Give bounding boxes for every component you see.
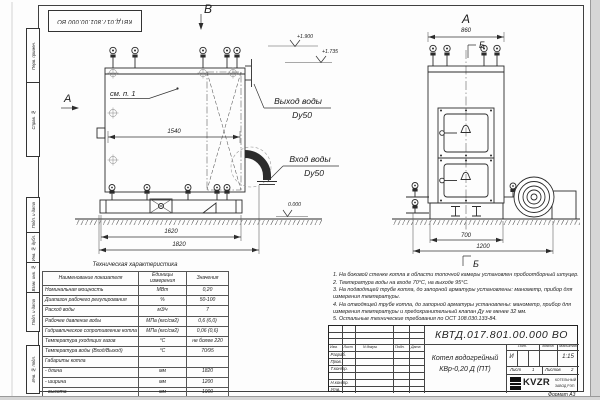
tb-mass-header: Масса: [542, 345, 553, 349]
tb-product-name-1: Котел водогрейный: [432, 355, 499, 362]
tb-doc-number: КВТД.017.801.00.000 ВО: [435, 330, 568, 341]
boiler-front-view: [75, 47, 322, 219]
note-line: 1. На боковой стенке котла в области топ…: [333, 272, 585, 279]
tb-col-list: Лист: [344, 346, 353, 350]
spec-row: Гидравлическое сопротивление котлаМПа (к…: [43, 326, 229, 336]
tb-sheets-label: Листов: [545, 368, 561, 372]
label-water-inlet-dn: Dy50: [304, 169, 324, 178]
spec-row: Номинальная мощностьМВт0,20: [43, 286, 229, 296]
spec-header-row: Наименование показателя Единицы измерени…: [43, 272, 229, 286]
safety-valve-icon: [110, 47, 240, 68]
tb-lit-header: Лит.: [518, 345, 527, 349]
tb-sheet-value: 1: [532, 368, 534, 372]
drawing-sheet: КВТД.017.801.00.000 ВО Перв. примен. Спр…: [0, 0, 600, 400]
label-water-outlet-dn: Dy50: [292, 111, 312, 120]
kvzr-logo-icon: [510, 377, 521, 390]
spec-header: Значения: [187, 272, 229, 286]
note-line: 3. На подводящей трубе котла, до запорно…: [333, 287, 585, 301]
tb-sheets-value: 2: [571, 368, 573, 372]
door-lock-icon: [461, 172, 470, 179]
tb-sheet-label: Лист: [510, 368, 521, 372]
view-label-front: В: [204, 3, 212, 15]
tb-lit-value: И: [509, 354, 513, 360]
dim-label-1820: 1820: [172, 242, 185, 248]
ground-hatch: [75, 220, 322, 225]
spec-header: Единицы измерения: [139, 272, 187, 286]
view-arrow-label-a: А: [64, 94, 71, 105]
dimension-lines-front: [99, 131, 259, 254]
technical-notes: 1. На боковой стенке котла в области топ…: [333, 272, 585, 324]
spec-row: Диапазон рабочего регулирования%50-100: [43, 296, 229, 306]
foundation: [430, 203, 503, 219]
note-line: 2. Температура воды на входе 70°С, на вы…: [333, 280, 585, 287]
tb-row-razrab: Разраб.: [331, 353, 347, 357]
tb-col-podp: Подп.: [395, 346, 405, 350]
note-line: 5. Остальные технические требования по О…: [333, 316, 585, 323]
tb-scale-value: 1:15: [562, 354, 574, 360]
tb-row-nkontr: Н.контр.: [331, 381, 349, 385]
base-frame: [100, 199, 242, 213]
spec-table-title: Техническая характеристика: [42, 262, 228, 268]
elevation-label-0000: 0.000: [288, 203, 301, 208]
doc-number-stamp-text: КВТД.017.801.00.000 ВО: [57, 18, 132, 24]
tb-col-izm: Изм.: [330, 346, 338, 350]
spec-row: - длинамм1820: [43, 367, 229, 377]
tb-scale-header: Масштаб: [559, 345, 577, 349]
spec-row: Габариты котла: [43, 357, 229, 367]
tb-product-name-2: КВр-0,20 Д (ПТ): [439, 366, 490, 373]
boiler-side-view: [392, 45, 580, 266]
tb-company-2: ЗАВОД РЭП: [555, 385, 574, 388]
burner: [203, 203, 216, 213]
spec-row: Температура уходящих газов°Сне более 220: [43, 336, 229, 346]
side-label-inv-dubl: Инв. № дубл.: [26, 232, 40, 264]
dim-label-860: 860: [461, 28, 471, 34]
section-mark-bottom: [463, 256, 471, 266]
side-label-podp-data-2: Подп. и дата: [26, 292, 40, 332]
side-label-sprav-no: Справ. №: [26, 82, 40, 157]
drain-valve-icon: [406, 183, 519, 214]
title-block: Изм. Лист N докум. Подп. Дата Разраб. Пр…: [328, 325, 578, 392]
tb-col-dokum: N докум.: [363, 346, 378, 350]
safety-valve-icon: [430, 45, 500, 66]
tb-col-data: Дата: [411, 346, 420, 350]
label-water-outlet: Выход воды: [274, 97, 322, 106]
ground-hatch: [392, 220, 580, 225]
crosshair-mark-icon: [108, 68, 239, 166]
page-edge-right: [590, 0, 600, 400]
spec-header: Наименование показателя: [43, 272, 139, 286]
tb-row-tkontr: Т.контр.: [331, 367, 348, 371]
fan-blower: [514, 177, 576, 219]
side-label-vzam-inv: Взам. инв. №: [26, 262, 40, 294]
tb-company-1: КОТЕЛЬНЫЙ: [555, 379, 576, 382]
dim-label-1540: 1540: [167, 129, 180, 135]
elevation-marks: [268, 40, 332, 217]
label-water-inlet: Вход воды: [289, 155, 330, 164]
tb-row-utv: Утв.: [331, 388, 341, 392]
tb-logo-text: KVZR: [523, 378, 550, 388]
spec-table: Наименование показателя Единицы измерени…: [42, 271, 229, 398]
section-label-b-top: Б: [479, 41, 485, 50]
section-mark-top: [468, 45, 476, 58]
side-label-perv-primen: Перв. примен.: [26, 28, 40, 84]
view-label-side: А: [462, 13, 470, 25]
note-line: 4. На отводящей трубе котла, до запорной…: [333, 302, 585, 316]
elevation-label-1900: +1.900: [297, 35, 313, 40]
water-outlet-flange: [245, 59, 252, 87]
dim-label-1620: 1620: [164, 229, 177, 235]
dim-label-700: 700: [461, 233, 471, 239]
door-lock-icon: [461, 125, 470, 132]
dim-label-1200: 1200: [476, 244, 489, 250]
doc-number-stamp: КВТД.017.801.00.000 ВО: [48, 10, 142, 32]
spec-row: - ширинамм1200: [43, 377, 229, 387]
tb-row-prov: Пров.: [331, 360, 342, 364]
side-label-podp-data-1: Подп. и дата: [26, 197, 40, 234]
callout-see-item-1: см. п. 1: [110, 90, 136, 98]
side-label-inv-podl: Инв. № подл.: [26, 345, 40, 394]
page-edge-bottom: [0, 396, 600, 400]
elevation-label-1735: +1.735: [322, 50, 338, 55]
section-label-b-bottom: Б: [473, 260, 479, 269]
water-inlet-elbow: [231, 147, 277, 187]
spec-row: Расход водым3/ч7: [43, 306, 229, 316]
spec-row: Температура воды (Вход/Выход)°С70/95: [43, 347, 229, 357]
spec-row: Рабочее давление водыМПа (кгс/см2)0,6 (6…: [43, 316, 229, 326]
